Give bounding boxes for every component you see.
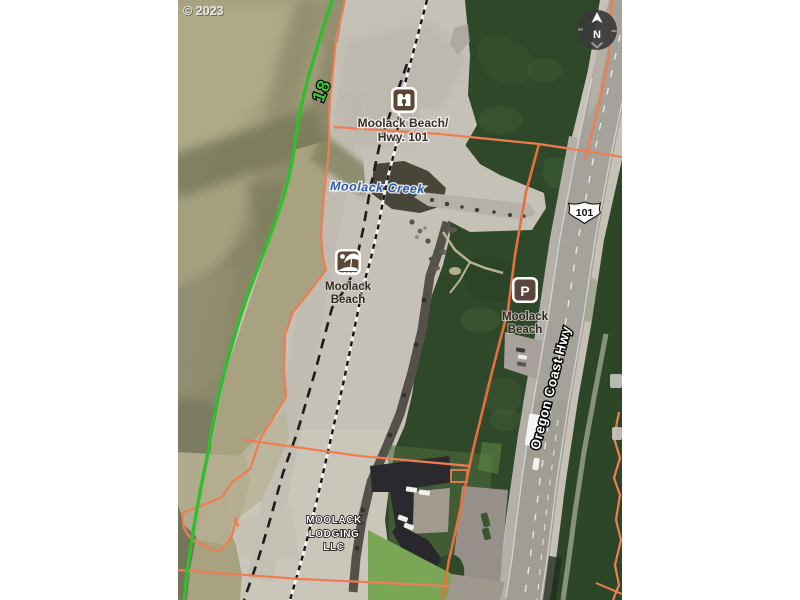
svg-text:Beach: Beach — [508, 324, 543, 336]
svg-text:Moolack: Moolack — [502, 311, 549, 323]
svg-text:101: 101 — [576, 207, 594, 219]
svg-text:Beach: Beach — [331, 294, 366, 306]
svg-text:Hwy. 101: Hwy. 101 — [378, 130, 429, 144]
svg-text:P: P — [520, 283, 529, 299]
svg-text:MOOLACK: MOOLACK — [306, 515, 362, 526]
svg-text:LODGING: LODGING — [309, 529, 360, 540]
svg-text:Moolack: Moolack — [325, 281, 372, 293]
svg-text:© 2023: © 2023 — [183, 4, 224, 18]
svg-text:N: N — [593, 29, 601, 41]
svg-text:LLC: LLC — [323, 542, 344, 553]
svg-text:Moolack Beach/: Moolack Beach/ — [358, 116, 449, 130]
